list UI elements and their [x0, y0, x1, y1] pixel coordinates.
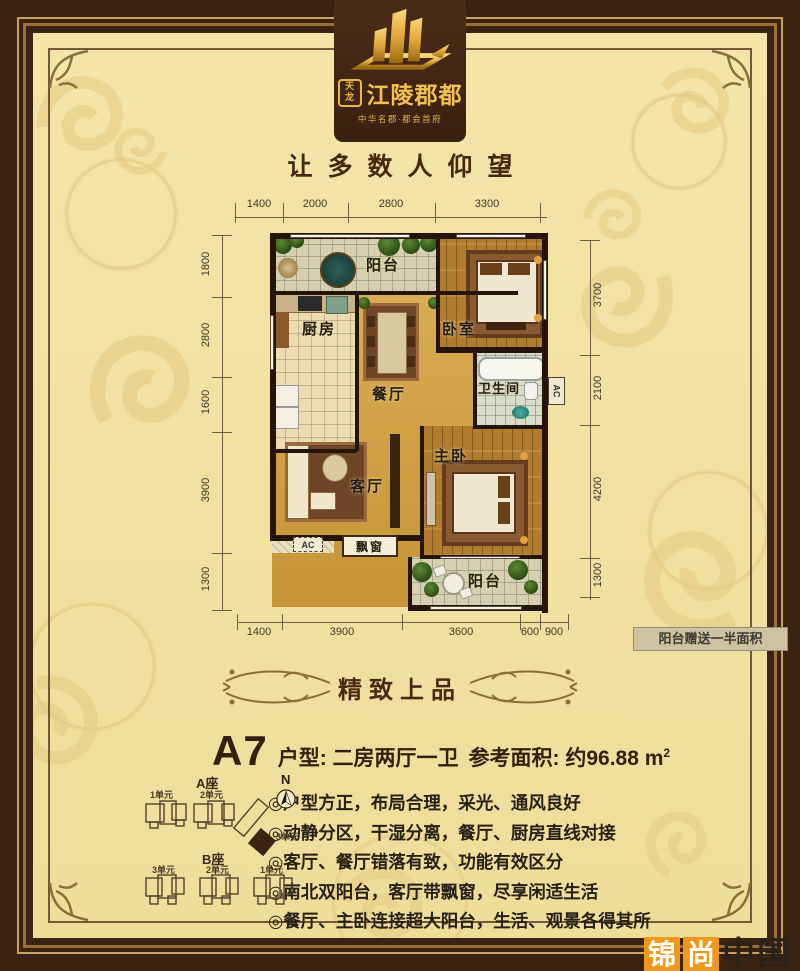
- dim-tick: [402, 614, 403, 630]
- wall: [436, 233, 440, 351]
- cabinet: [275, 407, 299, 429]
- dim-label: 1400: [239, 198, 279, 210]
- wall: [270, 233, 276, 541]
- wardrobe: [426, 472, 436, 526]
- ac-unit-left: AC: [293, 537, 323, 552]
- room-label-living: 客厅: [350, 475, 384, 496]
- lamp: [520, 452, 528, 460]
- sofa: [287, 445, 309, 519]
- dim-label: 2800: [371, 198, 411, 210]
- seal-char-bottom: 龙: [340, 92, 360, 103]
- chair: [367, 316, 375, 327]
- window: [290, 234, 410, 238]
- room-label-bedroom: 卧室: [442, 318, 476, 339]
- unit-label: 3单元: [152, 864, 175, 875]
- building-towers-icon: [348, 5, 452, 75]
- unit-label: 2单元: [200, 789, 223, 800]
- corner-flourish-icon: [708, 46, 754, 92]
- compass-icon: N: [277, 772, 295, 808]
- basin: [278, 258, 298, 278]
- dim-tick: [435, 203, 436, 223]
- brand-logo: 天 龙 江陵郡都 中华名郡·都会首府: [334, 0, 466, 142]
- ac-unit-right: AC: [548, 377, 565, 405]
- ac-label: AC: [302, 540, 315, 550]
- kitchen-cabinet: [274, 312, 289, 348]
- unit-label: 2单元: [206, 864, 229, 875]
- chair: [407, 356, 415, 367]
- brand-tagline: 中华名郡·都会首府: [334, 113, 466, 125]
- ac-label: AC: [552, 385, 562, 398]
- dim-tick: [540, 203, 541, 223]
- badge-text: 精致上品: [338, 670, 462, 705]
- unit-label: 1单元: [150, 789, 173, 800]
- dim-tick: [212, 610, 232, 611]
- bay-window: 飘窗: [342, 535, 398, 557]
- lamp: [534, 314, 542, 322]
- dim-tick: [235, 203, 236, 223]
- chair: [407, 336, 415, 347]
- plant: [508, 560, 528, 580]
- room-label-balcony-top: 阳台: [366, 254, 400, 275]
- wall: [272, 449, 357, 453]
- pillow: [498, 502, 510, 524]
- floor-plan: 1400 2000 2800 3300 1800 2800 1600 3900 …: [190, 190, 630, 665]
- watermark: 锦 尚 中国: [644, 937, 792, 971]
- plant: [412, 562, 432, 582]
- dining-table: [377, 312, 407, 374]
- chair: [407, 316, 415, 327]
- unit-label: 1单元: [260, 864, 283, 875]
- compass-n-label: N: [281, 772, 290, 787]
- watermark-box: 尚: [683, 937, 719, 971]
- wall: [408, 557, 412, 609]
- dim-label: 3600: [441, 626, 481, 638]
- wall: [355, 295, 359, 451]
- fridge: [275, 385, 299, 407]
- lamp: [534, 256, 542, 264]
- corner-flourish-icon: [46, 46, 92, 92]
- dim-tick: [212, 297, 232, 298]
- coffee-table: [322, 454, 348, 482]
- window: [430, 606, 522, 610]
- unit-type: 户型: 二房两厅一卫: [278, 742, 459, 772]
- flourish-left-icon: [220, 664, 332, 710]
- dim-tick: [580, 425, 600, 426]
- watermark-box: 锦: [644, 937, 680, 971]
- dim-tick: [212, 432, 232, 433]
- dim-label: 1300: [200, 549, 212, 609]
- window: [456, 234, 526, 238]
- flourish-right-icon: [468, 664, 580, 710]
- pillow: [508, 263, 530, 275]
- tv-cabinet: [390, 434, 400, 528]
- corner-flourish-icon: [46, 879, 92, 925]
- toilet: [512, 406, 529, 419]
- dim-label: 900: [541, 626, 567, 638]
- dim-tick: [212, 377, 232, 378]
- room-label-master: 主卧: [434, 445, 468, 466]
- pillow: [498, 476, 510, 498]
- dim-line-right: [590, 240, 591, 600]
- wall: [473, 353, 477, 429]
- stove: [298, 296, 322, 311]
- room-label-kitchen: 厨房: [302, 318, 336, 339]
- bed-bench: [486, 322, 526, 330]
- room-label-balcony-bottom: 阳台: [468, 570, 502, 591]
- wall: [272, 291, 518, 295]
- dim-label: 3900: [322, 626, 362, 638]
- dim-tick: [212, 235, 232, 236]
- dim-tick: [212, 553, 232, 554]
- dim-label: 1300: [592, 545, 604, 605]
- feature-item: ◎南北双阳台，客厅带飘窗，尽享闲适生活: [268, 878, 651, 908]
- wall: [398, 535, 424, 541]
- dim-label: 3700: [592, 265, 604, 325]
- dim-label: 3300: [467, 198, 507, 210]
- dim-label: 1600: [200, 372, 212, 432]
- dim-tick: [580, 355, 600, 356]
- highlighted-unit: [248, 828, 276, 856]
- dim-label: 4200: [592, 459, 604, 519]
- site-plan: A座 1单元 2单元 3单元 B座 3单元 2单元 1单元 N: [138, 770, 306, 928]
- unit-area: 参考面积: 约96.88 m2: [469, 742, 671, 772]
- dim-label: 1800: [200, 234, 212, 294]
- chair: [367, 356, 375, 367]
- feature-item: ◎动静分区，干湿分离，餐厅、厨房直线对接: [268, 819, 651, 849]
- seal-char-top: 天: [340, 81, 360, 92]
- dim-line-top: [235, 217, 547, 218]
- unit-area-sup: 2: [663, 746, 670, 760]
- feature-list: ◎户型方正，布局合理，采光、通风良好 ◎动静分区，干湿分离，餐厅、厨房直线对接 …: [268, 789, 651, 937]
- dim-label: 2800: [200, 305, 212, 365]
- wash-basin: [524, 382, 538, 400]
- window: [270, 315, 274, 370]
- wall: [436, 347, 546, 353]
- dim-tick: [348, 203, 349, 223]
- wall: [473, 425, 546, 429]
- feature-item: ◎餐厅、主卧连接超大阳台，生活、观景各得其所: [268, 907, 651, 937]
- dim-tick: [568, 614, 569, 630]
- round-table: [320, 252, 356, 288]
- window: [543, 260, 547, 320]
- brand-seal: 天 龙: [338, 79, 362, 107]
- dim-tick: [237, 614, 238, 630]
- room-label-dining: 餐厅: [372, 383, 406, 404]
- dim-label: 600: [517, 626, 543, 638]
- lamp: [520, 536, 528, 544]
- plant: [424, 582, 439, 597]
- block-a-label: A座: [196, 776, 218, 791]
- dim-label: 2000: [295, 198, 335, 210]
- dim-tick: [282, 614, 283, 630]
- ottoman: [310, 492, 336, 510]
- dim-tick: [283, 203, 284, 223]
- feature-item: ◎户型方正，布局合理，采光、通风良好: [268, 789, 651, 819]
- room-label-bathroom: 卫生间: [478, 378, 520, 397]
- feature-item: ◎客厅、餐厅错落有致，功能有效区分: [268, 848, 651, 878]
- unit-area-text: 参考面积: 约96.88 m: [469, 747, 664, 770]
- window: [440, 556, 520, 559]
- unit-code: A7: [212, 727, 268, 775]
- bay-window-label: 飘窗: [356, 538, 384, 555]
- brand-name: 江陵郡都: [367, 76, 463, 110]
- quality-badge: 精致上品: [0, 664, 800, 715]
- unit-title: A7 户型: 二房两厅一卫 参考面积: 约96.88 m2: [212, 727, 670, 775]
- plant: [358, 297, 370, 309]
- slogan: 让多数人仰望: [0, 147, 800, 183]
- balcony-bonus-note: 阳台赠送一半面积: [633, 627, 788, 651]
- plant: [524, 580, 538, 594]
- dim-label: 1400: [239, 626, 279, 638]
- watermark-text: 中国: [722, 937, 792, 971]
- dim-label: 2100: [592, 358, 604, 418]
- unit-label: 3单元: [276, 831, 299, 842]
- floorplan-poster: 天 龙 江陵郡都 中华名郡·都会首府 让多数人仰望 1400 2000 2800…: [0, 0, 800, 971]
- dim-tick: [580, 240, 600, 241]
- sink: [326, 296, 348, 314]
- dim-label: 3900: [200, 460, 212, 520]
- corner-flourish-icon: [708, 879, 754, 925]
- chair: [367, 336, 375, 347]
- pillow: [480, 263, 502, 275]
